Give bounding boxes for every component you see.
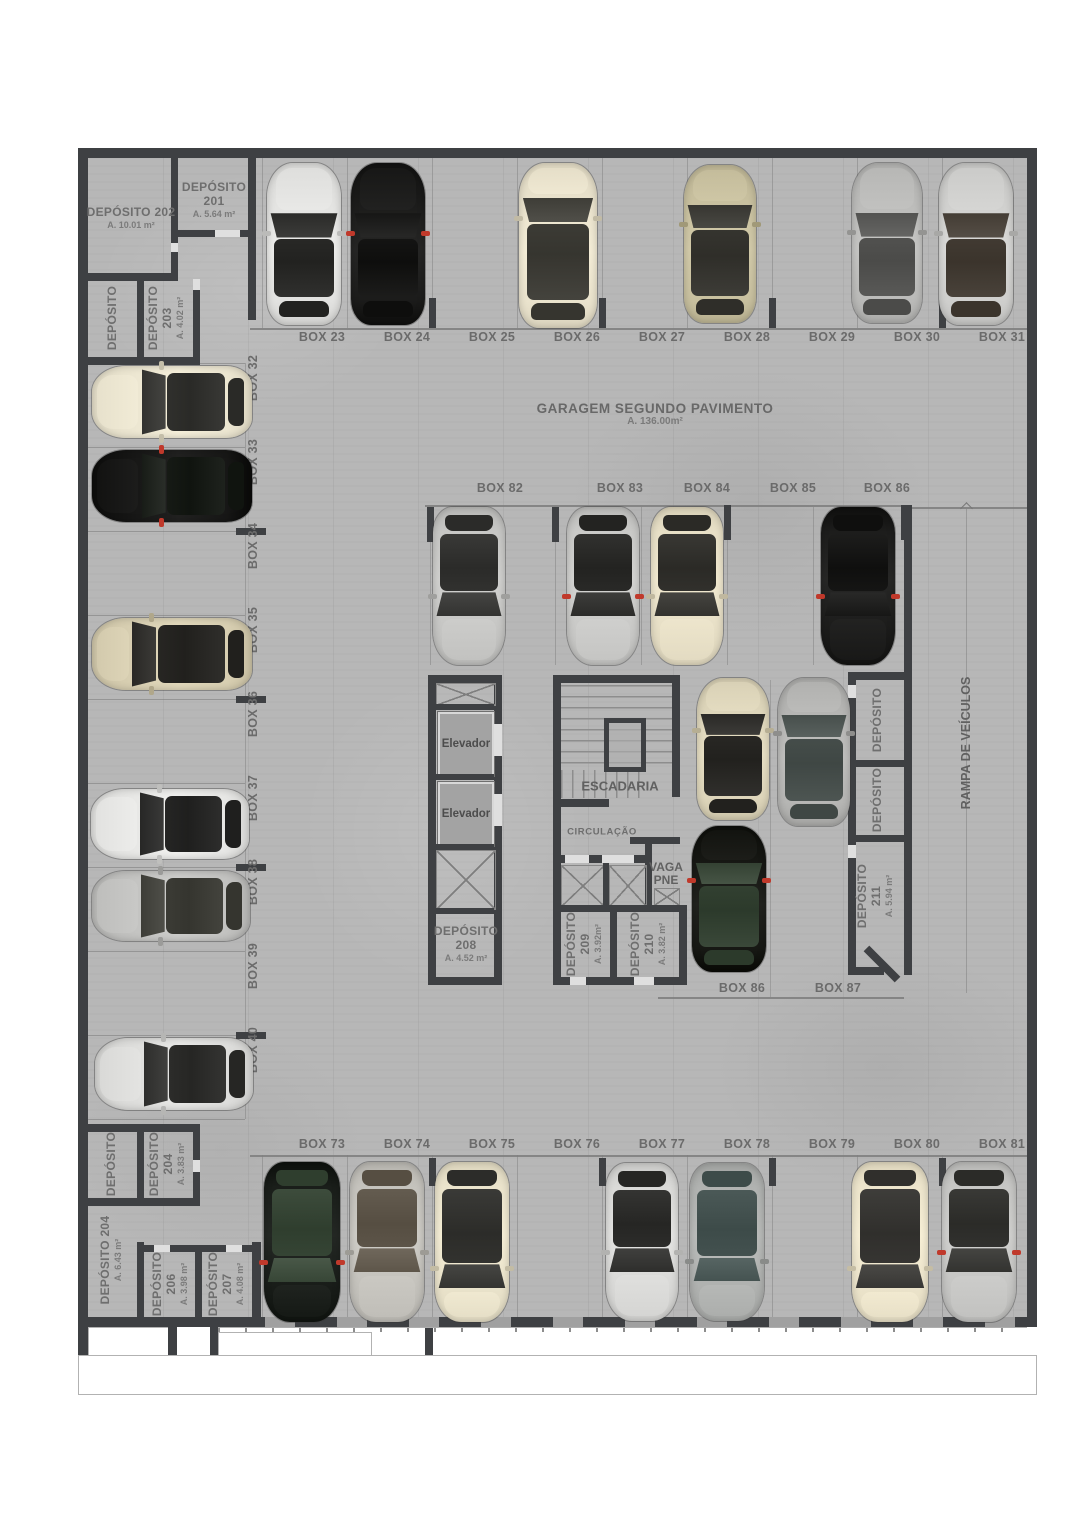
exterior-grille-ticks [218,1327,1027,1332]
deposito-201-label: DEPÓSITO 201 A. 5.64 m² [182,181,246,219]
car-mirror-right [159,518,164,527]
parking-spot-label: BOX 26 [554,330,600,344]
deposito-210-label: DEPÓSITO 210 A. 3.82 m² [629,912,667,976]
car-mirror-left [159,361,164,370]
wall [848,672,912,680]
deposito-207-label: DEPÓSITO 207 A. 4.08 m² [207,1252,245,1316]
car-mirror-right [674,1250,683,1255]
car-hood [359,1276,415,1318]
car-roof [949,1189,1008,1247]
door-gap [848,845,856,858]
deposito-204b-label: DEPÓSITO 204 A. 6.43 m² [99,1216,123,1305]
car-roof [828,534,887,591]
guide-line [88,531,245,532]
car-mirror-left [430,1266,439,1271]
car-rear-window [863,299,911,315]
car-roof [946,239,1005,297]
car-mirror-left [937,1250,946,1255]
car-hood [100,1047,141,1102]
garage-area: A. 136.00m² [537,416,774,427]
parking-spot-label: BOX 86 [864,481,910,495]
car-mirror-left [149,613,154,622]
car-hood [97,879,138,932]
shaft-void [436,850,496,910]
guide-line [88,867,245,868]
car-mirror-right [760,1259,769,1264]
car-mirror-left [846,731,855,736]
car-windshield [700,714,766,735]
car-rear-window [445,515,494,531]
car-windshield [695,863,763,885]
car-rear-window [790,804,839,819]
car-mirror-right [161,1106,166,1115]
car-windshield [141,874,165,938]
parking-spot-label: BOX 36 [246,691,260,737]
car-mirror-left [421,231,430,236]
wall [630,837,680,844]
car-mirror-left [562,594,571,599]
deposito-202-label: DEPÓSITO 202 A. 10.01 m² [87,206,176,230]
car-windshield [781,715,847,737]
car-box-86-col-b [692,826,766,972]
parking-spot-label: BOX 77 [639,1137,685,1151]
car-roof [691,230,749,296]
car-box-86-upper [821,507,895,665]
car-windshield [824,592,892,616]
parking-spot-label: BOX 75 [469,1137,515,1151]
wall [848,672,856,685]
deposito-208-label: DEPÓSITO 208 A. 4.52 m² [434,925,498,963]
car-box-23 [267,163,341,325]
car-roof [860,1189,921,1263]
guide-line [813,507,814,665]
car-hood [660,619,715,660]
guide-line [347,158,348,328]
car-roof [859,238,915,296]
car-mirror-left [816,594,825,599]
car-rear-window [579,515,628,531]
car-hood [442,619,497,660]
car-mirror-left [593,215,602,220]
car-box-32 [92,366,252,438]
car-mirror-left [762,878,771,883]
car-windshield [270,213,338,237]
car-hood [693,170,748,202]
outer-wall-top [78,148,1037,158]
guide-line [88,615,245,616]
car-mirror-right [679,222,688,227]
stair-wall [553,799,609,807]
deposito-r2-label: DEPÓSITO [871,768,885,832]
car-roof [167,457,225,515]
floorplan-page: DEPÓSITO 202 A. 10.01 m² DEPÓSITO 201 A.… [0,0,1080,1529]
car-hood [444,1292,500,1318]
storage-cell [561,865,605,907]
car-roof [613,1190,671,1247]
car-roof [704,736,762,796]
car-mirror-right [924,1266,933,1271]
outer-wall-right [1027,148,1037,1327]
wall [137,1242,144,1317]
car-mirror-right [336,1260,345,1265]
wall [193,290,200,357]
parking-spot-label: BOX 80 [894,1137,940,1151]
car-roof [699,886,758,947]
car-roof [169,1045,226,1103]
guide-line [262,158,263,328]
wall [252,1242,261,1317]
car-hood [951,1276,1007,1318]
guide-line [641,507,642,665]
parking-spot-label: BOX 85 [770,481,816,495]
car-roof [440,534,498,591]
car-windshield [142,369,166,435]
deposito-bl-label: DEPÓSITO [105,1132,119,1196]
wall [436,774,494,780]
wall [248,158,256,320]
car-windshield [570,592,636,616]
door-gap [634,977,654,985]
door-gap [193,1160,200,1172]
car-windshield [687,205,753,229]
garage-title-block: GARAGEM SEGUNDO PAVIMENTO A. 136.00m² [537,401,774,427]
car-mirror-left [601,1250,610,1255]
elevator-door [494,724,502,756]
parking-spot-label: BOX 81 [979,1137,1025,1151]
car-rear-window [696,299,745,315]
elevator-1-label: Elevador [442,738,491,750]
car-hood [576,619,631,660]
exterior-recess [88,1327,170,1357]
car-rear-window [363,301,413,317]
elevator-1: Elevador [438,712,494,776]
car-rear-window [833,515,883,531]
car-windshield [522,197,594,222]
deposito-206-label: DEPÓSITO 206 A. 3.98 m² [151,1252,189,1316]
car-box-40 [95,1038,253,1110]
vaga-pne-label: VAGA PNE [649,861,683,887]
car-box-87-col [778,678,850,826]
parking-spot-label: BOX 83 [597,481,643,495]
car-mirror-left [345,1250,354,1255]
guide-line [88,699,245,700]
elevator-block-wall [428,675,502,683]
car-hood [701,830,757,859]
parking-spot-label: BOX 86 [719,981,765,995]
car-mirror-right [157,855,162,864]
wall-stub [769,1158,776,1186]
car-roof [442,1189,501,1263]
guide-line [347,1155,348,1317]
car-box-35 [92,618,252,690]
car-box-86-col-a [697,678,769,820]
wall [137,278,144,357]
wall [195,1245,202,1317]
car-windshield [855,213,919,237]
parking-spot-label: BOX 76 [554,1137,600,1151]
wall [88,273,178,281]
car-mirror-right [501,594,510,599]
deposito-r1-label: DEPÓSITO [871,688,885,752]
car-windshield [855,1264,925,1288]
wall [88,1124,200,1132]
car-mirror-left [918,230,927,235]
car-windshield [945,1248,1013,1272]
car-mirror-right [159,434,164,443]
parking-spot-label: BOX 39 [246,943,260,989]
car-roof [357,1189,416,1247]
car-rear-window [226,882,242,930]
car-rear-window [228,462,244,511]
wall [171,158,178,243]
elevator-2-label: Elevador [442,808,491,820]
car-box-80 [852,1162,928,1322]
car-box-82 [433,507,505,665]
parking-spot-label: BOX 73 [299,1137,345,1151]
door-gap [565,855,589,863]
car-windshield [438,1264,506,1288]
parking-spot-label: BOX 84 [684,481,730,495]
door-gap [171,243,178,252]
car-rear-window [531,303,584,320]
wall [553,863,561,905]
car-rear-window [228,378,244,427]
guide-line [687,1155,688,1317]
car-mirror-left [685,1259,694,1264]
car-box-31 [939,163,1013,325]
guide-line [88,1119,245,1120]
car-hood [360,168,416,210]
stairs-label: ESCADARIA [581,779,658,794]
car-rear-window [864,1170,916,1186]
car-hood [861,1292,919,1318]
car-mirror-left [158,866,163,875]
car-mirror-left [752,222,761,227]
guide-line [88,447,245,448]
car-windshield [144,1041,168,1107]
car-rear-window [618,1171,667,1187]
wall [610,912,617,977]
parking-spot-label: BOX 87 [815,981,861,995]
parking-spot-label: BOX 74 [384,1137,430,1151]
car-mirror-left [157,784,162,793]
storage-cell [609,865,647,907]
car-mirror-right [719,594,728,599]
car-box-37 [91,789,249,859]
car-rear-window [447,1170,497,1186]
guide-line [517,158,518,328]
elevator-door [494,794,502,826]
door-gap [602,855,634,863]
wall [436,704,494,710]
car-roof [167,373,225,431]
car-box-38 [92,871,250,941]
car-rear-window [362,1170,412,1186]
car-windshield [353,1248,421,1272]
car-box-78 [690,1163,764,1321]
wall-stub [769,298,776,328]
car-hood [860,168,913,210]
car-mirror-left [646,594,655,599]
car-windshield [609,1248,675,1272]
car-mirror-right [934,231,943,236]
wall-stub [429,298,436,328]
car-rear-window [276,1170,328,1186]
parking-spot-label: BOX 28 [724,330,770,344]
stair-wall [672,675,680,797]
car-roof [697,1190,756,1256]
parking-spot-label: BOX 23 [299,330,345,344]
parking-spot-label: BOX 79 [809,1137,855,1151]
wall-stub [599,298,606,328]
car-hood [699,1285,755,1317]
car-box-75 [435,1162,509,1322]
car-mirror-left [259,1260,268,1265]
car-roof [166,878,223,934]
car-rear-window [229,1050,245,1099]
car-rear-window [279,301,329,317]
car-box-30 [852,163,922,323]
car-mirror-left [847,1266,856,1271]
car-mirror-right [1012,1250,1021,1255]
car-box-33 [92,450,252,522]
car-rear-window [702,1171,752,1187]
exterior-recess [218,1332,372,1357]
guide-line [517,1155,518,1317]
car-box-84 [651,507,723,665]
car-hood [96,797,137,850]
car-mirror-left [159,445,164,454]
door-gap [215,230,240,237]
car-roof [785,739,843,801]
car-windshield [654,592,720,616]
parking-spot-label: BOX 78 [724,1137,770,1151]
door-gap [848,685,856,698]
car-hood [528,167,587,193]
car-mirror-right [891,594,900,599]
parking-spot-label: BOX 30 [894,330,940,344]
car-hood [276,168,332,210]
wall [848,835,912,842]
wall [679,905,687,985]
car-roof [165,796,222,852]
car-mirror-right [158,937,163,946]
car-mirror-right [346,231,355,236]
car-roof [574,534,632,591]
parking-spot-label: BOX 29 [809,330,855,344]
car-mirror-right [505,1266,514,1271]
car-roof [358,239,417,297]
outer-wall-left [78,148,88,1327]
car-box-73 [264,1162,340,1322]
car-hood [706,682,761,710]
car-rear-window [951,301,1001,317]
car-mirror-right [262,231,271,236]
guide-line [658,997,904,999]
deposito-204a-label: DEPÓSITO 204 A. 3.83 m² [148,1132,186,1196]
wall-stub [724,505,731,540]
deposito-203-label: DEPÓSITO 203 A. 4.02 m² [147,286,185,350]
car-mirror-left [161,1033,166,1042]
car-mirror-right [687,878,696,883]
deposito-209-label: DEPÓSITO 209 A. 3.92m² [565,912,603,976]
car-mirror-right [773,731,782,736]
wall [178,230,215,237]
parking-spot-label: BOX 24 [384,330,430,344]
stair-wall [553,675,680,683]
door-gap [570,977,586,985]
exterior-sidewalk [78,1355,1037,1395]
car-windshield [132,621,156,687]
wall [848,760,912,767]
car-rear-window [225,800,241,848]
car-hood [97,627,129,682]
elevator-2: Elevador [438,782,494,846]
deposito-211-label: DEPÓSITO 211 A. 5.94 m² [856,864,894,928]
shaft-pit [436,683,496,706]
guide-line [88,1035,245,1036]
ramp-label: RAMPA DE VEÍCULOS [959,677,973,810]
guide-line [425,505,904,507]
car-mirror-right [514,215,523,220]
ramp-wall [904,505,912,975]
vaga-pne-hatch [654,888,680,906]
car-rear-window [954,1170,1004,1186]
car-mirror-left [428,594,437,599]
car-hood [97,459,139,514]
parking-spot-label: BOX 31 [979,330,1025,344]
car-windshield [436,592,502,616]
car-rear-window [228,630,244,679]
parking-spot-label: BOX 82 [477,481,523,495]
car-mirror-right [692,728,701,733]
car-mirror-right [847,230,856,235]
stair-landing [604,718,646,772]
elevator-block-wall [428,977,502,985]
parking-spot-label: BOX 34 [246,523,260,569]
car-windshield [354,213,422,237]
car-roof [274,239,333,297]
car-mirror-left [1009,231,1018,236]
garage-title: GARAGEM SEGUNDO PAVIMENTO [537,401,774,416]
circulation-label: CIRCULAÇÃO [567,827,637,838]
car-box-77 [606,1163,678,1321]
car-box-24 [351,163,425,325]
door-gap [193,279,200,290]
car-box-26 [519,163,597,328]
wall [848,967,884,975]
car-hood [273,1285,331,1317]
parking-spot-label: BOX 25 [469,330,515,344]
car-roof [527,224,589,300]
wall-stub [552,507,559,542]
car-hood [830,619,886,660]
car-windshield [693,1258,761,1282]
car-rear-window [704,950,754,965]
car-hood [787,682,842,712]
car-mirror-right [420,1250,429,1255]
car-roof [658,534,716,591]
car-roof [158,625,225,683]
wall-stub [599,1158,606,1186]
guide-line [250,1155,1027,1157]
wall [553,905,561,985]
wall [137,1124,144,1203]
guide-line [88,951,245,952]
car-windshield [142,453,166,519]
car-mirror-right [149,686,154,695]
car-hood [97,375,139,430]
